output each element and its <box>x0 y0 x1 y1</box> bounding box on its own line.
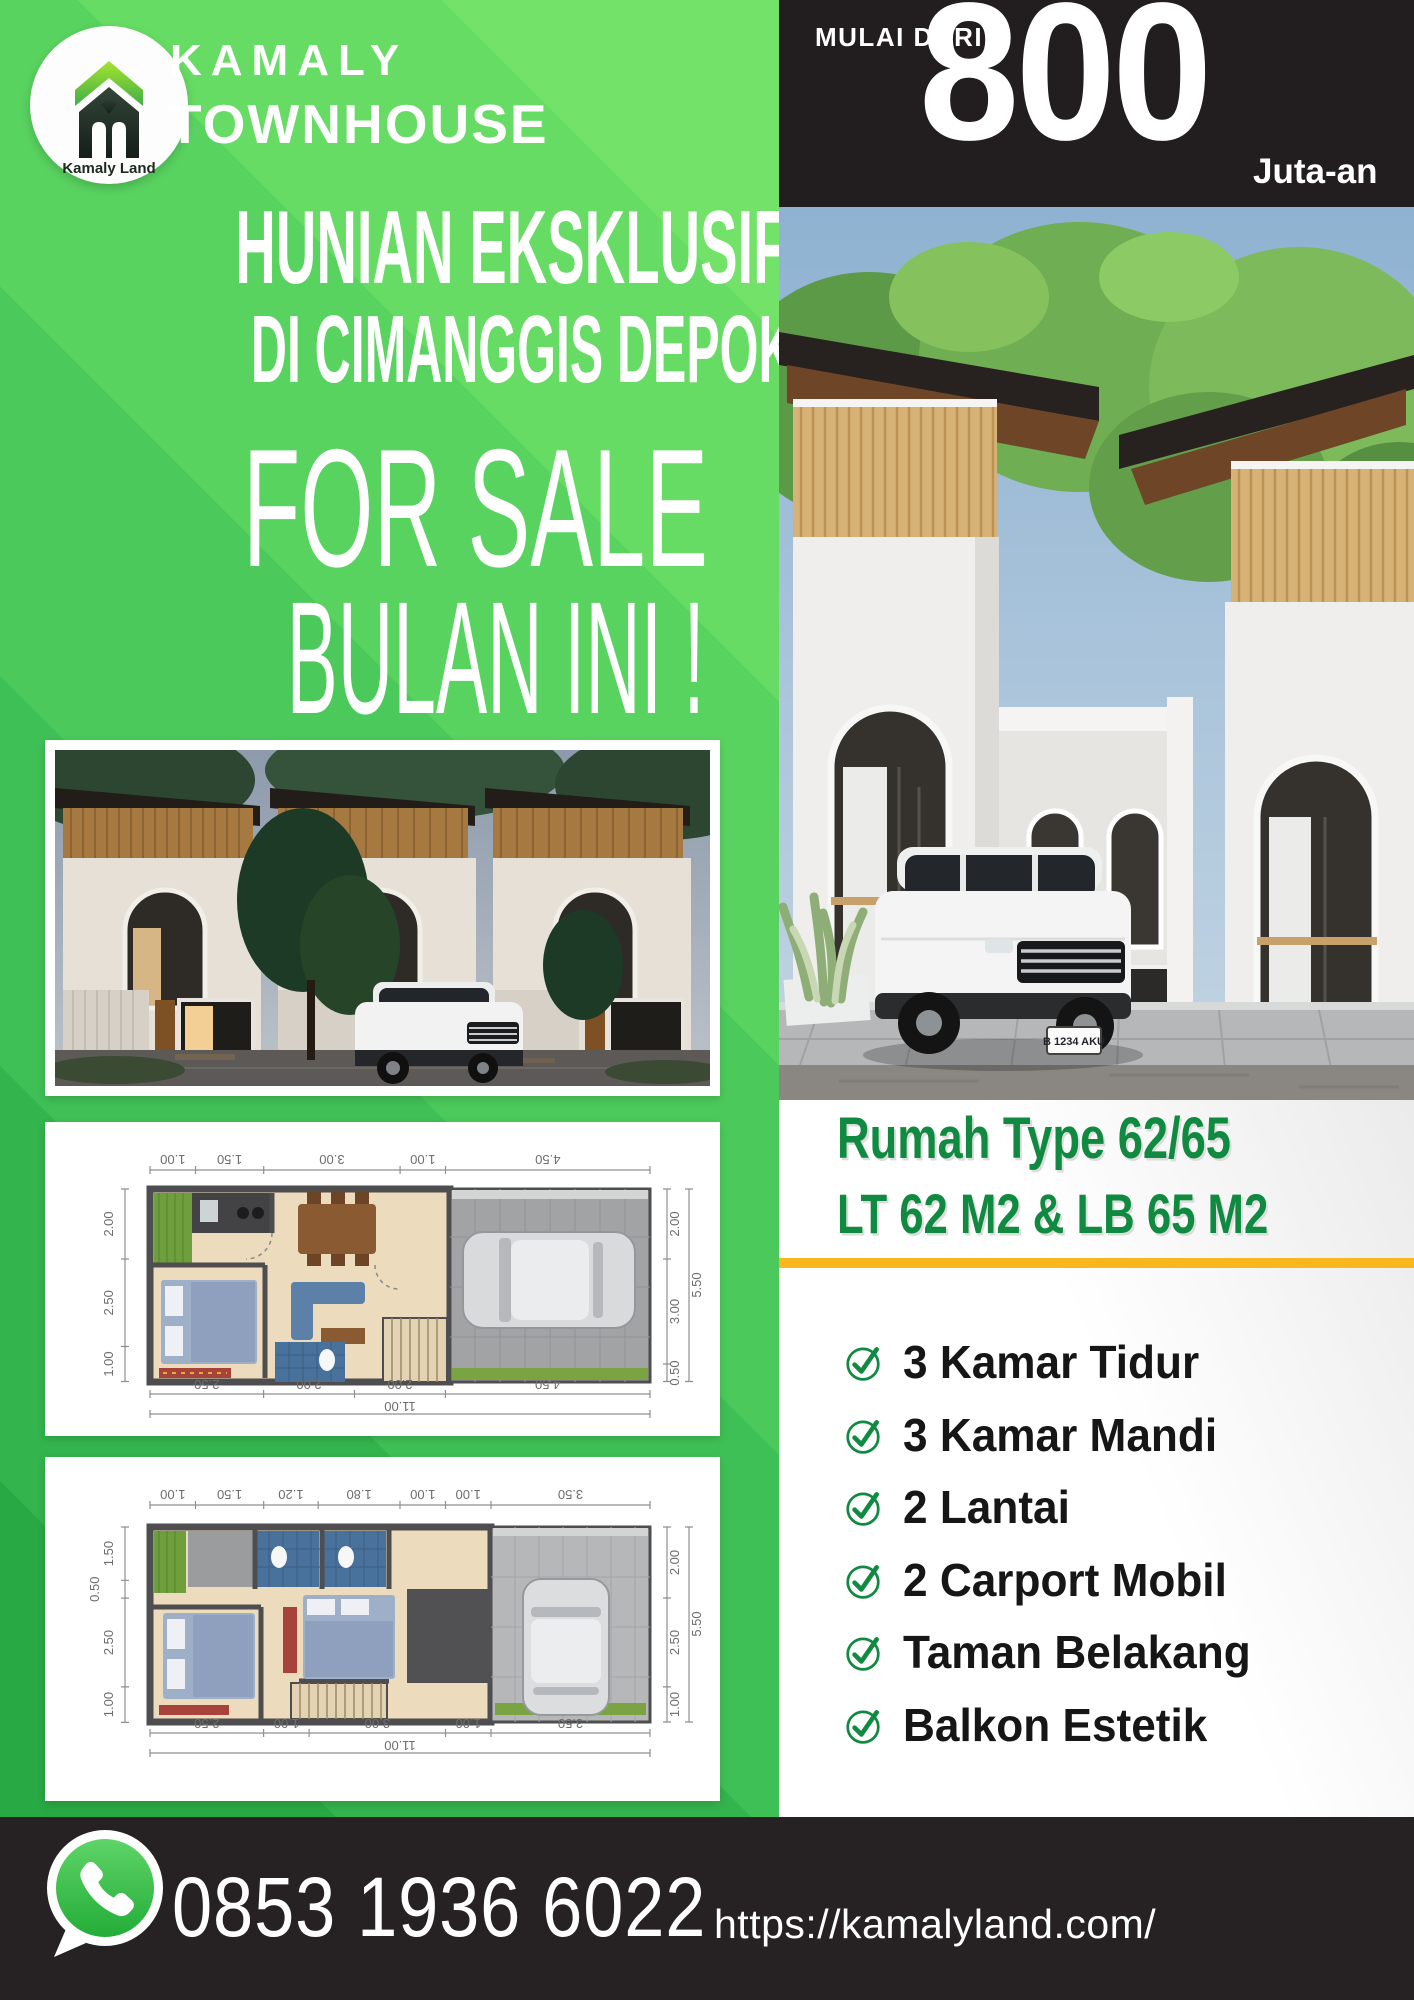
plan1-car <box>463 1232 635 1328</box>
check-icon <box>843 1632 883 1672</box>
svg-text:11.00: 11.00 <box>384 1738 416 1753</box>
feature-item: Taman Belakang <box>843 1616 1265 1689</box>
svg-text:5.50: 5.50 <box>689 1272 704 1297</box>
brand-product: TOWNHOUSE <box>168 92 549 156</box>
price-banner: MULAI DARI 800 Juta-an <box>779 0 1414 207</box>
svg-text:1.20: 1.20 <box>278 1487 303 1502</box>
check-icon <box>843 1560 883 1600</box>
svg-text:1.50: 1.50 <box>217 1152 242 1167</box>
brand-name: KAMALY <box>170 36 408 86</box>
feature-item: Balkon Estetik <box>843 1689 1265 1762</box>
svg-text:4.50: 4.50 <box>535 1152 560 1167</box>
price-suffix: Juta-an <box>1253 152 1377 192</box>
svg-text:2.50: 2.50 <box>194 1716 219 1731</box>
svg-text:0.50: 0.50 <box>667 1360 682 1385</box>
flyer-poster: Kamaly Land KAMALY TOWNHOUSE HUNIAN EKSK… <box>0 0 1414 2000</box>
feature-item: 3 Kamar Tidur <box>843 1326 1265 1399</box>
exterior-night-photo <box>45 740 720 1096</box>
svg-text:1.00: 1.00 <box>456 1487 481 1502</box>
feature-label: 3 Kamar Mandi <box>903 1408 1217 1462</box>
feature-label: Balkon Estetik <box>903 1698 1207 1752</box>
yellow-divider <box>779 1258 1414 1268</box>
feature-label: 2 Lantai <box>903 1480 1070 1534</box>
price-amount: 800 <box>919 0 1209 170</box>
kamaly-land-logo-icon: Kamaly Land <box>30 26 188 184</box>
check-icon <box>843 1487 883 1527</box>
svg-text:5.50: 5.50 <box>689 1611 704 1636</box>
svg-text:1.00: 1.00 <box>274 1716 299 1731</box>
floor-plan-1: 1.00 1.50 3.00 1.00 4.50 2.50 2.00 2.00 … <box>45 1122 720 1436</box>
exterior-night-image <box>55 750 710 1086</box>
svg-text:3.50: 3.50 <box>558 1716 583 1731</box>
check-icon <box>843 1415 883 1455</box>
svg-text:3.00: 3.00 <box>365 1716 390 1731</box>
feature-list: 3 Kamar Tidur 3 Kamar Mandi 2 Lantai 2 C… <box>843 1326 1265 1761</box>
feature-item: 3 Kamar Mandi <box>843 1399 1265 1472</box>
feature-label: 3 Kamar Tidur <box>903 1335 1199 1389</box>
svg-text:1.50: 1.50 <box>217 1487 242 1502</box>
svg-text:1.00: 1.00 <box>410 1152 435 1167</box>
svg-text:0.50: 0.50 <box>87 1577 102 1602</box>
svg-text:1.50: 1.50 <box>101 1541 116 1566</box>
logo-caption: Kamaly Land <box>62 160 155 177</box>
svg-text:2.00: 2.00 <box>387 1377 412 1392</box>
website-link[interactable]: https://kamalyland.com/ <box>714 1901 1156 1948</box>
house-type-title: Rumah Type 62/65 <box>837 1110 1231 1168</box>
feature-label: Taman Belakang <box>903 1625 1251 1679</box>
exterior-day-photo: B 1234 AKU <box>779 207 1414 1100</box>
headline-line1: HUNIAN EKSKLUSIF <box>0 196 640 300</box>
svg-text:1.00: 1.00 <box>101 1692 116 1717</box>
license-plate: B 1234 AKU <box>1043 1036 1105 1048</box>
svg-text:1.00: 1.00 <box>160 1152 185 1167</box>
svg-text:4.50: 4.50 <box>535 1377 560 1392</box>
floor-plan-1-image: 1.00 1.50 3.00 1.00 4.50 2.50 2.00 2.00 … <box>55 1132 710 1426</box>
feature-item: 2 Carport Mobil <box>843 1544 1265 1617</box>
plan2-balcony <box>407 1589 491 1683</box>
headline-line4: BULAN INI ! <box>60 578 700 738</box>
svg-text:2.50: 2.50 <box>101 1290 116 1315</box>
svg-text:1.00: 1.00 <box>101 1351 116 1376</box>
left-green-background: Kamaly Land KAMALY TOWNHOUSE HUNIAN EKSK… <box>0 0 779 1819</box>
svg-text:3.00: 3.00 <box>319 1152 344 1167</box>
svg-text:2.00: 2.00 <box>296 1377 321 1392</box>
svg-text:2.50: 2.50 <box>101 1630 116 1655</box>
svg-text:1.00: 1.00 <box>410 1487 435 1502</box>
svg-text:3.50: 3.50 <box>558 1487 583 1502</box>
svg-text:1.00: 1.00 <box>160 1487 185 1502</box>
svg-text:1.00: 1.00 <box>456 1716 481 1731</box>
spec-panel: Rumah Type 62/65 LT 62 M2 & LB 65 M2 3 K… <box>779 1100 1414 1817</box>
svg-text:1.00: 1.00 <box>667 1692 682 1717</box>
floor-plan-2-image: 1.00 1.50 1.20 1.80 1.00 1.00 3.50 2.50 … <box>55 1467 710 1791</box>
svg-text:2.50: 2.50 <box>194 1377 219 1392</box>
headline-line3: FOR SALE <box>60 424 700 592</box>
whatsapp-icon[interactable] <box>44 1829 166 1964</box>
feature-label: 2 Carport Mobil <box>903 1553 1227 1607</box>
plan2-bathroom-1 <box>255 1531 319 1587</box>
plan2-bathroom-2 <box>322 1531 386 1587</box>
svg-text:3.00: 3.00 <box>667 1299 682 1324</box>
plan2-car <box>523 1579 609 1715</box>
check-icon <box>843 1705 883 1745</box>
brand-logo: Kamaly Land <box>30 26 188 184</box>
phone-number[interactable]: 0853 1936 6022 <box>172 1865 706 1949</box>
check-icon <box>843 1342 883 1382</box>
svg-text:1.80: 1.80 <box>346 1487 371 1502</box>
headline-line2: DI CIMANGGIS DEPOK <box>0 302 640 398</box>
svg-text:2.00: 2.00 <box>101 1211 116 1236</box>
plan1-dining-table <box>298 1204 376 1254</box>
feature-item: 2 Lantai <box>843 1471 1265 1544</box>
floor-plan-2: 1.00 1.50 1.20 1.80 1.00 1.00 3.50 2.50 … <box>45 1457 720 1801</box>
svg-text:2.50: 2.50 <box>667 1630 682 1655</box>
exterior-day-image: B 1234 AKU <box>779 207 1414 1100</box>
svg-text:11.00: 11.00 <box>384 1399 416 1414</box>
svg-text:2.00: 2.00 <box>667 1550 682 1575</box>
footer-bar: 0853 1936 6022 https://kamalyland.com/ <box>0 1817 1414 2000</box>
house-area-title: LT 62 M2 & LB 65 M2 <box>837 1186 1268 1242</box>
svg-text:2.00: 2.00 <box>667 1211 682 1236</box>
